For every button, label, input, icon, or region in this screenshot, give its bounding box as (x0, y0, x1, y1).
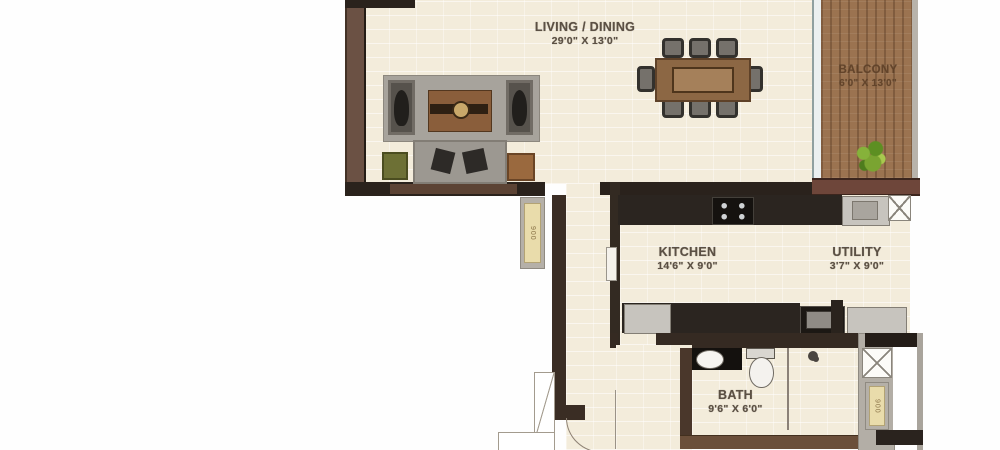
stair-outline-vertical (534, 372, 555, 440)
bath-shaft-x-box (862, 348, 892, 378)
armchair-left-seat (394, 90, 409, 126)
shower-partition (787, 348, 789, 430)
living-room-size: 29'0" X 13'0" (505, 35, 665, 48)
balcony-size: 6'0" X 13'0" (822, 78, 914, 90)
bath-door-tag-text: 900 (874, 399, 881, 414)
shower-head-icon (808, 351, 818, 361)
utility-sink-bowl (852, 201, 878, 220)
console-decor (452, 101, 470, 119)
balcony-name: BALCONY (822, 64, 914, 78)
balcony-right-wall (912, 0, 918, 192)
kitchen-top-wall (600, 182, 812, 195)
utility-size: 3'7" X 9'0" (818, 260, 896, 273)
bath-sink (696, 350, 724, 369)
corridor-door-tag: 900 (520, 197, 545, 269)
living-room-label: LIVING / DINING 29'0" X 13'0" (505, 20, 665, 48)
plant-icon (852, 138, 890, 176)
bath-bottom-wall (680, 435, 860, 449)
floor-plan: LIVING / DINING 29'0" X 13'0" BALCONY 6'… (0, 0, 1000, 450)
fridge (624, 304, 671, 334)
stair-outline-base (498, 432, 555, 450)
corridor-door-tag-inner: 900 (524, 203, 540, 262)
utility-name: UTILITY (818, 245, 896, 260)
balcony-label: BALCONY 6'0" X 13'0" (822, 64, 914, 90)
living-left-wall (345, 0, 366, 196)
kitchen-utility-partition (831, 300, 843, 333)
dining-chair (689, 38, 711, 58)
kitchen-name: KITCHEN (630, 245, 745, 260)
kitchen-window (606, 247, 617, 281)
sofa-pillow-2 (462, 148, 488, 174)
dining-chair (662, 38, 684, 58)
bath-size: 9'6" X 6'0" (688, 403, 783, 416)
toilet-bowl (749, 357, 774, 388)
bath-door-tag: 900 (865, 382, 889, 430)
corridor-door-tag-text: 900 (529, 226, 536, 241)
right-top-wall (865, 333, 917, 347)
utility-shaft-x-box (888, 195, 911, 221)
bath-name: BATH (688, 388, 783, 403)
right-bottom-wall (876, 430, 923, 445)
kitchen-label: KITCHEN 14'6" X 9'0" (630, 245, 745, 273)
dining-chair (637, 66, 655, 92)
armchair-right-seat (512, 90, 527, 126)
dining-table-runner (672, 67, 734, 93)
dining-chair (716, 38, 738, 58)
utility-label: UTILITY 3'7" X 9'0" (818, 245, 896, 273)
side-table-right (507, 153, 535, 181)
bath-label: BATH 9'6" X 6'0" (688, 388, 783, 416)
living-bottom-wall-window (390, 184, 517, 194)
service-void (893, 347, 917, 431)
stove (712, 197, 754, 225)
bath-door-tag-inner: 900 (869, 386, 885, 426)
side-table-left (382, 152, 408, 180)
living-room-name: LIVING / DINING (505, 20, 665, 35)
living-top-wall-cap (345, 0, 415, 8)
kitchen-size: 14'6" X 9'0" (630, 260, 745, 273)
sofa (413, 140, 507, 184)
balcony-bottom-wall (812, 178, 920, 196)
